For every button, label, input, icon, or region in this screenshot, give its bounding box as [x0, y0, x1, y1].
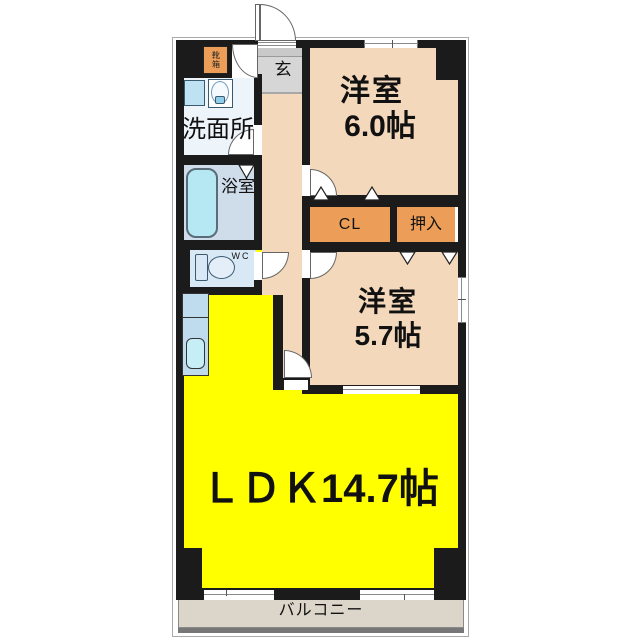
entrance-door-arc: [260, 4, 296, 41]
label-western-room-1-size: 6.0帖: [296, 110, 464, 144]
kitchen-counter-divider: [182, 317, 209, 318]
wall-pillar: [176, 548, 202, 600]
floor-plan: 靴箱 玄 洗面所 浴室 WC 洋室 6.0帖 CL 押入 洋室 5.7帖 ＬＤＫ…: [0, 0, 640, 640]
sliding-door-marker: [363, 186, 381, 201]
window-tick: [226, 590, 227, 596]
window: [360, 590, 434, 600]
sliding-door-marker: [441, 251, 458, 265]
sliding-opening-line: [343, 389, 420, 390]
wall: [254, 280, 262, 287]
label-western-room-2-size: 5.7帖: [306, 320, 470, 352]
shoe-cabinet: 靴箱: [203, 46, 228, 74]
label-western-room-1: 洋室: [290, 76, 454, 108]
shoe-cabinet-label: 靴箱: [204, 47, 227, 73]
wall: [275, 588, 360, 600]
window-tick: [392, 40, 393, 48]
wall: [273, 295, 283, 390]
label-balcony: バルコニー: [178, 602, 464, 620]
window-tick: [404, 594, 405, 600]
window-line: [204, 594, 274, 595]
label-closet-cl: CL: [310, 216, 390, 234]
entrance-door-leaf: [255, 4, 260, 41]
label-ldk: ＬＤＫ14.7帖: [182, 466, 458, 512]
wash-basin-tap: [215, 96, 225, 104]
wall: [390, 207, 397, 242]
label-oshiire: 押入: [397, 216, 455, 234]
wall-pillar: [436, 40, 466, 80]
window: [204, 590, 274, 600]
sliding-door-marker: [399, 251, 416, 265]
label-bathroom: 浴室: [214, 176, 262, 196]
entrance-threshold-line: [258, 45, 296, 46]
wall: [254, 155, 262, 250]
washing-machine: [184, 80, 205, 106]
door-opening: [284, 380, 308, 390]
window-line: [360, 594, 434, 595]
wall-pillar: [434, 548, 466, 600]
window-line: [364, 43, 418, 44]
window: [364, 40, 418, 48]
entrance-threshold-line: [258, 42, 296, 43]
toilet-tank: [195, 254, 208, 281]
label-western-room-2: 洋室: [306, 286, 470, 318]
balcony-rail: [178, 628, 464, 633]
sliding-door-marker: [312, 186, 330, 201]
label-wc: WC: [226, 250, 256, 262]
label-washroom: 洗面所: [178, 117, 258, 143]
kitchen-sink: [186, 338, 205, 369]
door-opening: [302, 250, 310, 278]
sliding-opening: [343, 386, 420, 394]
door-opening: [302, 165, 310, 196]
